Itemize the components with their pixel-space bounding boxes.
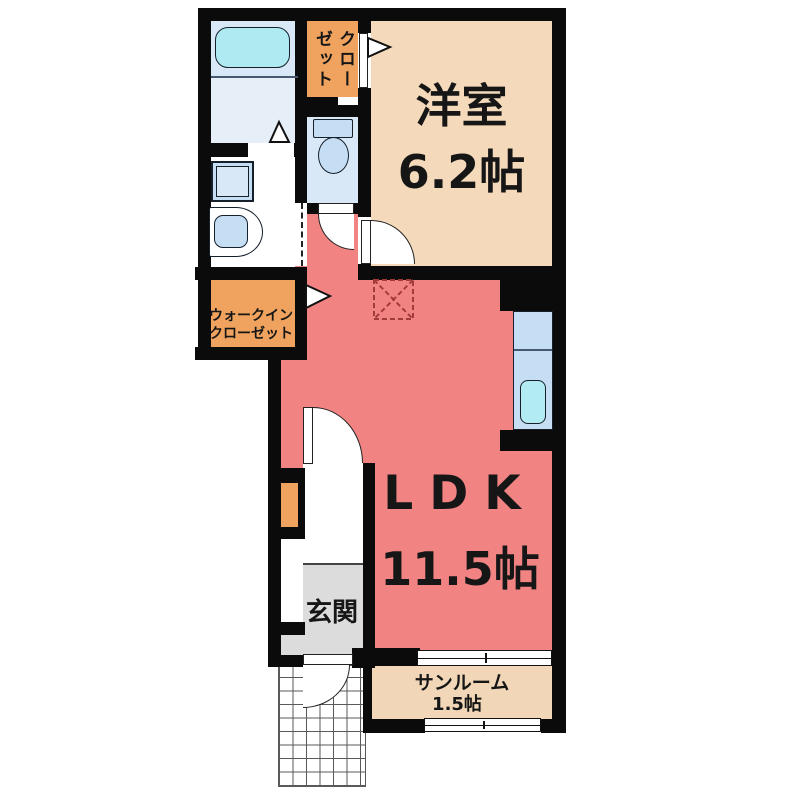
wall-shoe-right: [298, 483, 305, 527]
genkan-label: 玄関: [301, 592, 363, 629]
kitchen-counter: [513, 311, 553, 430]
wall-sunroom-bottom-left: [363, 719, 425, 733]
toilet-tank: [313, 119, 353, 138]
wall-kitchen-bottom: [500, 430, 552, 451]
entrance-door-leaf: [303, 654, 353, 665]
sliding-door-dashes: [301, 203, 303, 266]
washing-machine-inner: [216, 166, 249, 197]
wall-wic-bottom: [195, 347, 307, 360]
washbasin-bowl: [214, 215, 248, 248]
room-genkan-step: [281, 635, 303, 655]
window-tick: [485, 653, 487, 663]
bathroom-divider-line: [211, 76, 298, 78]
wall-closet-bottom-a: [307, 97, 338, 117]
yoshitsu-size: 6.2帖: [371, 136, 552, 202]
washing-machine-space: [211, 161, 254, 202]
yoshitsu-label: 洋室: [371, 70, 552, 136]
room-bathroom-floor: [211, 77, 298, 143]
wic-label-line1: ウォークイン: [207, 305, 295, 325]
entrance-hall-side-strip: [281, 539, 303, 622]
ldk-label: LDK: [365, 466, 555, 521]
sunroom-bottom-window: [424, 718, 541, 732]
wall-kitchen-top: [500, 280, 552, 311]
kitchen-counter-divider: [514, 349, 552, 351]
window-tick: [483, 721, 485, 729]
toilet-bowl: [318, 137, 349, 174]
wall-wic-top: [195, 267, 307, 280]
yoshitsu-door-leaf: [361, 220, 371, 264]
wall-sunroom-bottom-right: [541, 719, 566, 733]
wall-closet-bottom-b: [338, 105, 371, 117]
wall-left-lower: [268, 347, 281, 667]
washroom-sliding-door: [295, 203, 307, 266]
wall-shoe-bottom: [268, 527, 305, 539]
sunroom-size: 1.5帖: [372, 690, 542, 716]
ldk-size: 11.5帖: [365, 533, 555, 599]
closet-door-leaf: [359, 33, 368, 88]
wall-yoshitsu-bottom: [358, 266, 566, 280]
wall-shoe-top: [281, 468, 305, 483]
wall-ldk-bottom: [363, 648, 420, 666]
wall-genkan-bottom-left: [268, 655, 303, 667]
kitchen-sink: [520, 380, 546, 424]
washbasin-counter: [209, 207, 263, 257]
wall-wic-right: [295, 280, 307, 347]
floor-plan: 洋室 6.2帖 LDK 11.5帖 玄関 サンルーム 1.5帖 ウォークイン ク…: [0, 0, 800, 800]
shoe-cabinet: [281, 483, 298, 527]
ldk-door-leaf: [303, 407, 313, 464]
wall-top: [198, 8, 566, 21]
entrance-hall: [303, 461, 363, 563]
wall-bath-closet-divider: [295, 8, 307, 214]
bathtub: [215, 27, 290, 68]
wic-label-line2: クローゼット: [207, 323, 295, 343]
closet-label: クローゼット: [309, 24, 356, 96]
sunroom-top-window: [417, 650, 552, 666]
wall-right: [552, 8, 566, 733]
toilet-door-leaf: [318, 203, 354, 214]
bathroom-door-opening: [248, 143, 294, 157]
